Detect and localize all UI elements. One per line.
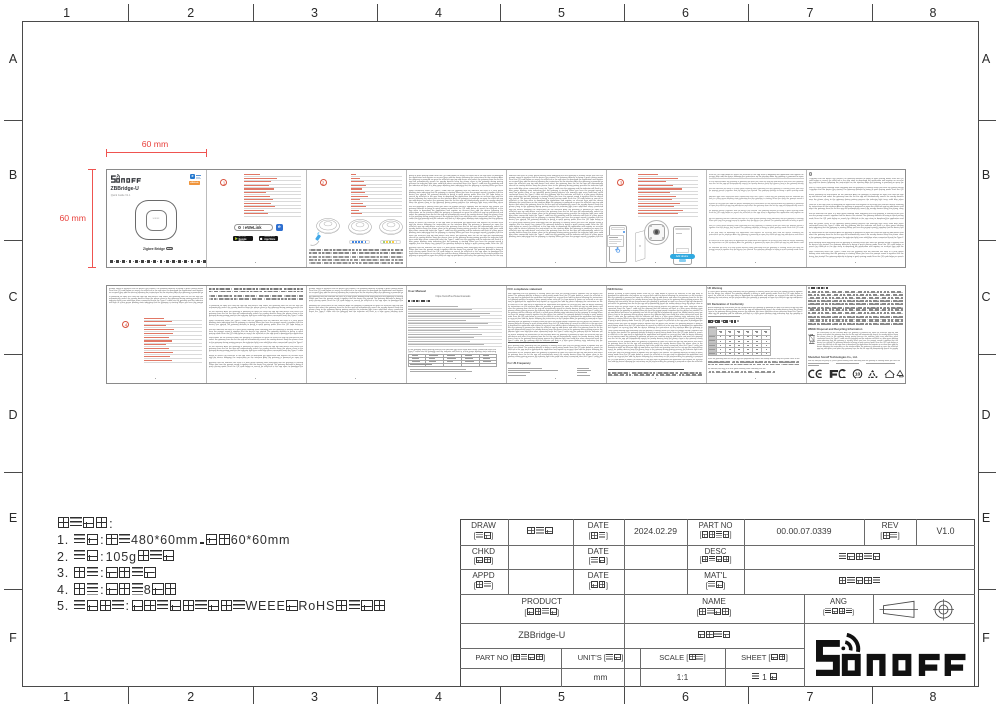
svg-text:10: 10 xyxy=(854,371,860,377)
